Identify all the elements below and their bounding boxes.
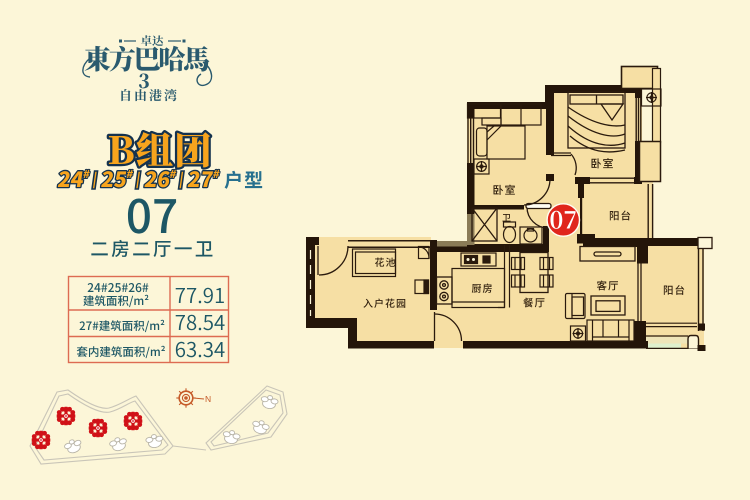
- svg-text:N: N: [205, 394, 211, 404]
